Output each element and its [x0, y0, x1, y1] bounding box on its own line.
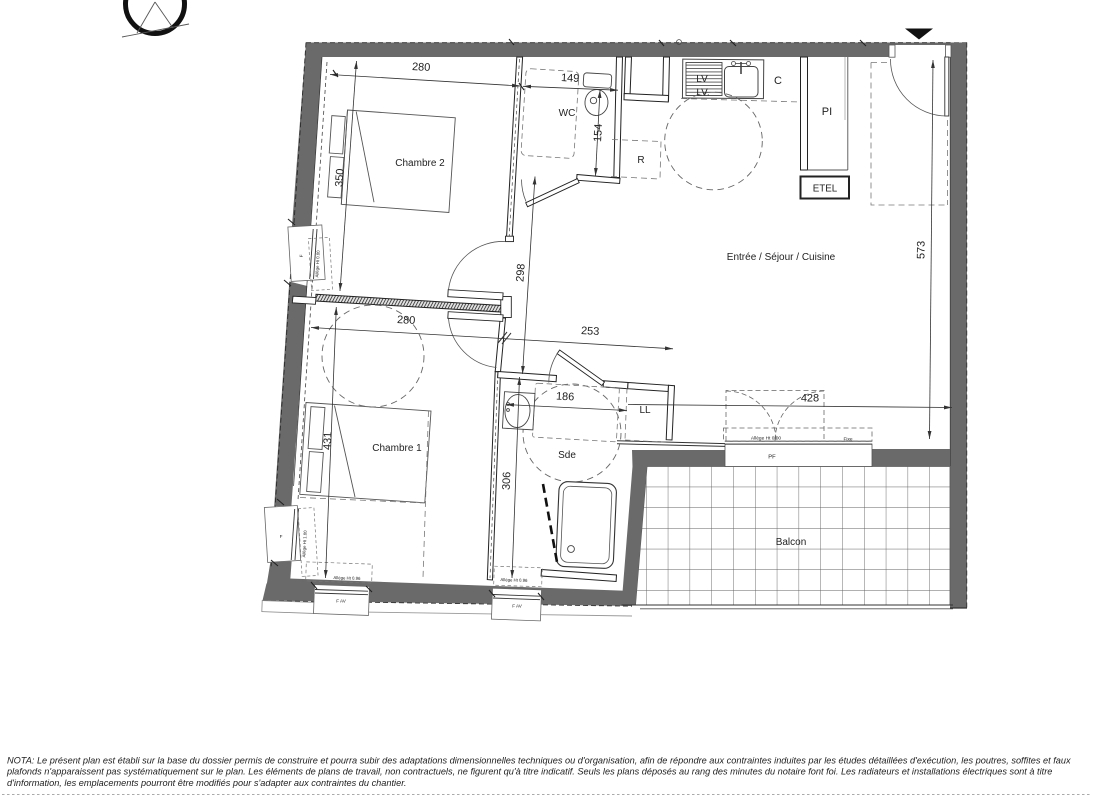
- svg-text:d'information, les emplacement: d'information, les emplacements pourront…: [7, 778, 406, 788]
- svg-text:F: F: [299, 254, 304, 257]
- svg-text:WC: WC: [559, 108, 576, 119]
- svg-text:280: 280: [397, 314, 416, 327]
- svg-text:253: 253: [581, 325, 600, 338]
- svg-text:428: 428: [801, 393, 819, 405]
- svg-text:plafonds n'apparaissent pas sy: plafonds n'apparaissent pas systématique…: [6, 767, 1052, 777]
- svg-text:LV: LV: [696, 74, 708, 85]
- svg-text:Entrée / Séjour / Cuisine: Entrée / Séjour / Cuisine: [727, 252, 836, 263]
- svg-text:Sde: Sde: [558, 450, 576, 461]
- svg-text:Fixe: Fixe: [843, 437, 852, 443]
- svg-text:NOTA: Le présent plan est étab: NOTA: Le présent plan est établi sur la …: [7, 756, 1071, 766]
- svg-text:350: 350: [333, 168, 346, 187]
- svg-text:Chambre 2: Chambre 2: [395, 158, 445, 169]
- svg-text:F AV: F AV: [336, 599, 347, 604]
- svg-text:C: C: [774, 75, 782, 87]
- svg-text:F: F: [280, 534, 283, 539]
- svg-text:149: 149: [561, 72, 580, 85]
- svg-text:298: 298: [514, 263, 527, 282]
- svg-text:LV.: LV.: [696, 88, 709, 99]
- svg-text:F AV: F AV: [512, 604, 523, 609]
- svg-text:Allège Ht 0.96: Allège Ht 0.96: [333, 575, 361, 581]
- svg-text:ETEL: ETEL: [813, 184, 838, 195]
- svg-text:280: 280: [412, 61, 431, 74]
- svg-text:Allège Ht 0.00: Allège Ht 0.00: [751, 436, 781, 442]
- svg-text:Chambre 1: Chambre 1: [372, 443, 422, 454]
- svg-text:PI: PI: [822, 106, 832, 118]
- svg-text:154: 154: [592, 123, 605, 142]
- svg-text:Allège Ht 0.96: Allège Ht 0.96: [500, 577, 528, 583]
- svg-text:306: 306: [501, 471, 514, 490]
- svg-text:R: R: [637, 155, 644, 166]
- svg-text:573: 573: [915, 241, 927, 260]
- svg-text:186: 186: [556, 391, 575, 404]
- svg-text:PF: PF: [768, 455, 776, 461]
- svg-text:Balcon: Balcon: [776, 537, 807, 548]
- svg-text:431: 431: [322, 431, 335, 450]
- svg-text:LL: LL: [639, 405, 651, 416]
